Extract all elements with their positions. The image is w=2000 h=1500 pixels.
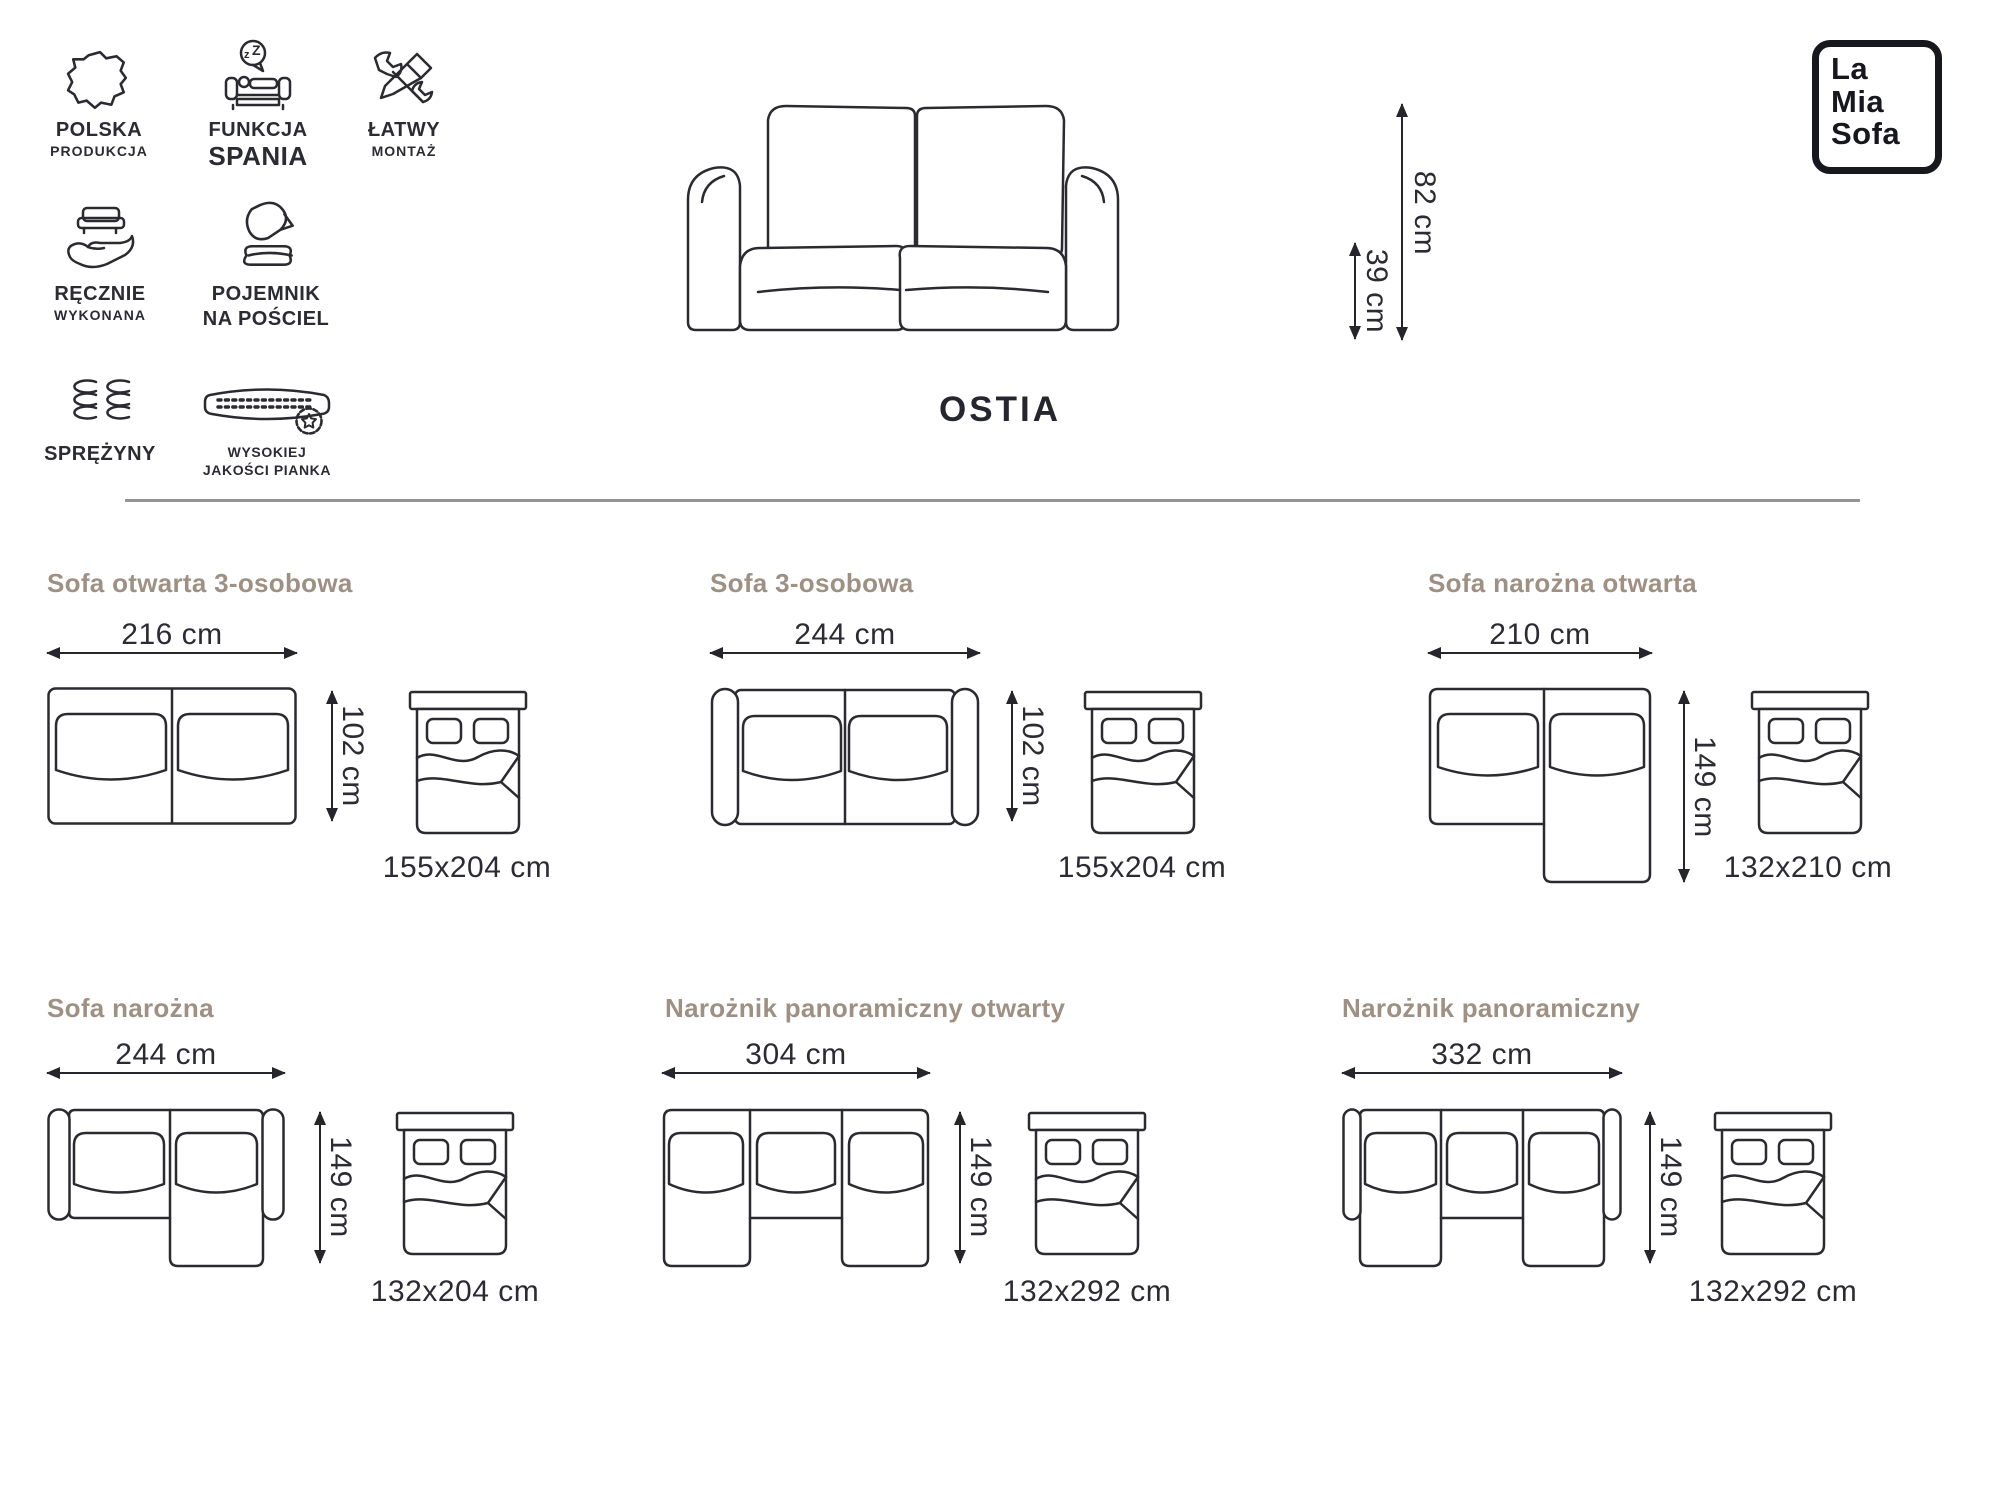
- feature-label: POJEMNIK: [212, 283, 320, 305]
- depth-arrow: [1683, 691, 1685, 882]
- depth-label: 149 cm: [323, 1136, 357, 1237]
- width-label: 210 cm: [1440, 618, 1640, 652]
- config-title: Sofa otwarta 3-osobowa: [47, 568, 353, 599]
- bed-icon: [408, 686, 528, 844]
- mattress-size-label: 155x204 cm: [367, 851, 567, 885]
- feature-label: RĘCZNIE: [54, 283, 145, 305]
- sofa-top-view-3seat: [710, 687, 980, 827]
- feature-label: POLSKA: [56, 119, 142, 141]
- svg-text:z: z: [244, 49, 250, 61]
- mattress-size-label: 132x204 cm: [355, 1275, 555, 1309]
- depth-label: 149 cm: [1687, 736, 1721, 837]
- feature-recznie-wykonana: RĘCZNIE WYKONANA: [25, 196, 175, 323]
- sofa-top-view-panoramic: [1342, 1108, 1622, 1268]
- feature-sublabel: NA POŚCIEL: [203, 308, 330, 330]
- width-label: 244 cm: [66, 1038, 266, 1072]
- springs-icon: [67, 372, 133, 436]
- sofa-top-view-corner: [47, 1108, 285, 1268]
- feature-sublabel: WYKONANA: [54, 308, 146, 323]
- logo-line: La: [1831, 53, 1935, 86]
- bedding-storage-icon: [233, 194, 299, 276]
- spec-sheet: POLSKA PRODUKCJA z Z FUNKCJA SPANIA: [0, 0, 2000, 1500]
- width-arrow: [1342, 1072, 1622, 1074]
- feature-sublabel: JAKOŚCI PIANKA: [203, 463, 331, 478]
- mattress-size-label: 132x210 cm: [1708, 851, 1908, 885]
- feature-label: ŁATWY: [368, 119, 440, 141]
- bed-icon: [395, 1107, 515, 1265]
- total-height-arrow: [1401, 104, 1403, 340]
- sofa-top-view-open-3seat: [47, 687, 297, 825]
- depth-arrow: [1649, 1112, 1651, 1263]
- feature-label: WYSOKIEJ: [228, 445, 307, 460]
- feature-sublabel: SPANIA: [208, 142, 307, 171]
- config-title: Sofa narożna: [47, 993, 214, 1024]
- feature-latwy-montaz: ŁATWY MONTAŻ: [348, 40, 460, 159]
- logo-line: Sofa: [1831, 118, 1935, 151]
- width-arrow: [662, 1072, 930, 1074]
- feature-sublabel: MONTAŻ: [372, 144, 437, 159]
- bed-icon: [1750, 686, 1870, 844]
- depth-arrow: [959, 1112, 961, 1263]
- depth-arrow: [319, 1112, 321, 1263]
- sleep-function-icon: z Z: [221, 36, 295, 112]
- sofa-top-view-corner-open: [1428, 687, 1652, 884]
- bed-icon: [1027, 1107, 1147, 1265]
- sofa-top-view-panoramic-open: [662, 1108, 930, 1268]
- width-arrow: [47, 1072, 285, 1074]
- config-title: Narożnik panoramiczny: [1342, 993, 1640, 1024]
- seat-height-label: 39 cm: [1359, 249, 1393, 333]
- handmade-icon: [62, 196, 138, 276]
- config-title: Sofa 3-osobowa: [710, 568, 914, 599]
- width-label: 304 cm: [696, 1038, 896, 1072]
- mattress-size-label: 132x292 cm: [987, 1275, 1187, 1309]
- feature-polska-produkcja: POLSKA PRODUKCJA: [25, 40, 173, 159]
- section-divider: [125, 499, 1860, 502]
- depth-label: 149 cm: [963, 1136, 997, 1237]
- bed-icon: [1713, 1107, 1833, 1265]
- mattress-size-label: 132x292 cm: [1673, 1275, 1873, 1309]
- feature-sprezyny: SPRĘŻYNY: [30, 372, 170, 465]
- mattress-size-label: 155x204 cm: [1042, 851, 1242, 885]
- svg-text:Z: Z: [252, 42, 261, 58]
- product-name: OSTIA: [850, 390, 1150, 430]
- feature-label: FUNKCJA: [208, 119, 307, 141]
- config-title: Narożnik panoramiczny otwarty: [665, 993, 1065, 1024]
- depth-arrow: [331, 691, 333, 821]
- feature-label: SPRĘŻYNY: [44, 443, 156, 465]
- feature-wysokiej-jakosci-pianka: WYSOKIEJ JAKOŚCI PIANKA: [172, 380, 362, 479]
- feature-sublabel: PRODUKCJA: [50, 144, 148, 159]
- total-height-label: 82 cm: [1407, 171, 1441, 255]
- width-label: 216 cm: [72, 618, 272, 652]
- config-title: Sofa narożna otwarta: [1428, 568, 1697, 599]
- feature-pojemnik-na-posciel: POJEMNIK NA POŚCIEL: [186, 194, 346, 330]
- logo-line: Mia: [1831, 86, 1935, 119]
- feature-funkcja-spania: z Z FUNKCJA SPANIA: [182, 36, 334, 171]
- depth-arrow: [1011, 691, 1013, 821]
- tools-icon: [373, 40, 435, 112]
- brand-logo: La Mia Sofa: [1812, 40, 1942, 174]
- poland-map-icon: [66, 40, 132, 112]
- depth-label: 102 cm: [1015, 705, 1049, 806]
- width-label: 332 cm: [1382, 1038, 1582, 1072]
- width-arrow: [710, 652, 980, 654]
- bed-icon: [1083, 686, 1203, 844]
- depth-label: 102 cm: [335, 705, 369, 806]
- seat-height-arrow: [1354, 243, 1356, 339]
- depth-label: 149 cm: [1653, 1136, 1687, 1237]
- sofa-front-view-drawing: [678, 96, 1128, 342]
- width-label: 244 cm: [745, 618, 945, 652]
- foam-quality-icon: [200, 380, 334, 438]
- width-arrow: [47, 652, 297, 654]
- width-arrow: [1428, 652, 1652, 654]
